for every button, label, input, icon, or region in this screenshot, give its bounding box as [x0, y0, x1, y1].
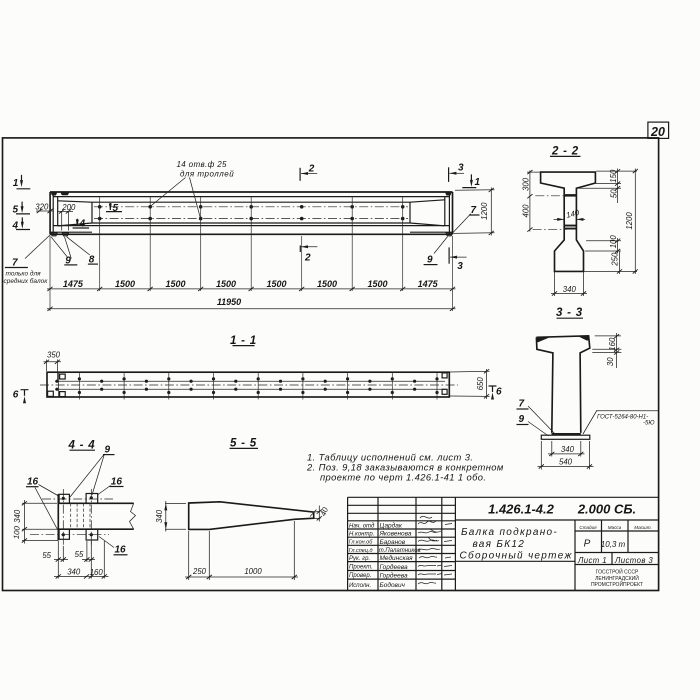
svg-text:340: 340	[155, 509, 164, 523]
svg-text:1500: 1500	[115, 279, 135, 289]
svg-text:вая БК12: вая БК12	[473, 539, 526, 550]
svg-text:Масшт.: Масшт.	[634, 525, 652, 530]
svg-text:1475: 1475	[63, 279, 84, 289]
svg-text:Гордеева: Гордеева	[380, 571, 408, 579]
svg-text:1: 1	[475, 177, 481, 188]
svg-text:2.000 СБ.: 2.000 СБ.	[577, 502, 636, 517]
svg-text:650: 650	[476, 377, 485, 391]
svg-text:55: 55	[42, 551, 51, 560]
svg-text:160: 160	[608, 337, 617, 351]
svg-text:400: 400	[521, 204, 530, 218]
svg-text:20: 20	[650, 125, 665, 139]
svg-text:Проект.: Проект.	[349, 565, 373, 571]
svg-text:Нач. отд: Нач. отд	[349, 523, 375, 529]
svg-text:Яковенова: Яковенова	[379, 531, 412, 538]
svg-text:Рук. гр.: Рук. гр.	[349, 556, 370, 562]
svg-text:проекте по черт 1.426.1-41 1 о: проекте по черт 1.426.1-41 1 обо.	[320, 472, 486, 483]
svg-text:540: 540	[559, 458, 573, 467]
svg-text:16: 16	[27, 477, 39, 488]
svg-text:2 - 2: 2 - 2	[551, 146, 579, 158]
svg-text:Мединская: Мединская	[380, 554, 414, 562]
svg-text:Гордеева: Гордеева	[380, 563, 408, 571]
svg-text:Стадия: Стадия	[579, 525, 597, 530]
svg-text:1500: 1500	[165, 279, 185, 289]
svg-text:1200: 1200	[625, 212, 634, 230]
svg-text:Гл.спец.д: Гл.спец.д	[349, 548, 373, 554]
svg-text:средних балок: средних балок	[4, 277, 49, 285]
svg-text:ПРОМСТРОЙПРОЕКТ: ПРОМСТРОЙПРОЕКТ	[591, 580, 643, 588]
svg-text:1500: 1500	[317, 279, 337, 289]
svg-text:1500: 1500	[266, 279, 286, 289]
svg-text:340: 340	[563, 285, 577, 294]
svg-text:250: 250	[610, 252, 619, 267]
svg-text:340: 340	[13, 509, 22, 523]
svg-text:2: 2	[304, 252, 311, 263]
svg-text:1: 1	[13, 178, 19, 189]
svg-text:9: 9	[519, 414, 525, 425]
svg-text:Провер.: Провер.	[349, 573, 371, 579]
svg-text:350: 350	[47, 351, 61, 360]
svg-text:14 отв.ф 25: 14 отв.ф 25	[177, 160, 227, 169]
svg-text:5 - 5: 5 - 5	[230, 437, 257, 449]
svg-text:-5Ю: -5Ю	[643, 420, 654, 426]
svg-text:11950: 11950	[217, 297, 241, 307]
svg-text:1475: 1475	[418, 279, 439, 289]
svg-text:6: 6	[13, 390, 19, 401]
svg-text:т.Палатников: т.Палатников	[379, 548, 421, 554]
svg-text:Сборочный чертеж: Сборочный чертеж	[460, 549, 573, 561]
svg-text:для троллей: для троллей	[180, 170, 234, 179]
svg-text:Балка подкрано-: Балка подкрано-	[461, 527, 558, 538]
svg-text:ЛЕНИНГРАДСКИЙ: ЛЕНИНГРАДСКИЙ	[595, 574, 639, 582]
svg-text:3 - 3: 3 - 3	[556, 307, 583, 319]
svg-text:55: 55	[75, 550, 84, 559]
svg-text:7: 7	[519, 399, 525, 410]
svg-text:Р: Р	[584, 539, 591, 550]
svg-text:Баранов: Баранов	[380, 539, 406, 546]
svg-text:1500: 1500	[216, 279, 236, 289]
svg-text:300: 300	[521, 177, 530, 191]
svg-text:340: 340	[561, 445, 575, 454]
svg-text:160: 160	[90, 568, 104, 577]
svg-text:16: 16	[115, 545, 127, 556]
svg-text:3: 3	[458, 162, 464, 173]
svg-text:Бодович: Бодович	[380, 581, 406, 589]
svg-text:9: 9	[427, 255, 433, 266]
svg-text:9: 9	[105, 444, 111, 455]
svg-text:30: 30	[606, 357, 615, 366]
svg-text:340: 340	[67, 567, 81, 576]
svg-text:50: 50	[609, 189, 618, 198]
svg-text:320: 320	[35, 202, 49, 211]
svg-text:Гл.кон.об: Гл.кон.об	[349, 540, 374, 546]
svg-text:Листов 3: Листов 3	[614, 556, 653, 565]
svg-text:16: 16	[111, 476, 123, 487]
svg-text:10,3 т: 10,3 т	[601, 540, 626, 549]
svg-text:только для: только для	[6, 270, 42, 278]
svg-text:ГОССТРОЙ СССР: ГОССТРОЙ СССР	[596, 568, 639, 576]
svg-text:1200: 1200	[480, 202, 489, 220]
svg-text:100: 100	[12, 525, 22, 539]
svg-text:3: 3	[457, 261, 463, 272]
svg-text:Н.контр.: Н.контр.	[349, 532, 374, 538]
svg-text:6: 6	[496, 386, 502, 397]
svg-text:7: 7	[471, 205, 477, 216]
svg-text:100: 100	[609, 235, 618, 249]
svg-text:1000: 1000	[244, 567, 262, 576]
svg-text:2: 2	[308, 164, 315, 175]
svg-text:Исполн.: Исполн.	[349, 583, 371, 589]
svg-text:Масса: Масса	[608, 525, 622, 530]
svg-text:1500: 1500	[367, 279, 387, 289]
svg-text:250: 250	[192, 567, 207, 576]
svg-text:ГОСТ-5264-80-Н1-: ГОСТ-5264-80-Н1-	[597, 414, 648, 420]
svg-text:Лист 1: Лист 1	[577, 556, 607, 565]
svg-text:1.426.1-4.2: 1.426.1-4.2	[488, 502, 555, 517]
svg-text:Цардак: Цардак	[380, 522, 403, 530]
svg-text:7: 7	[12, 257, 18, 268]
